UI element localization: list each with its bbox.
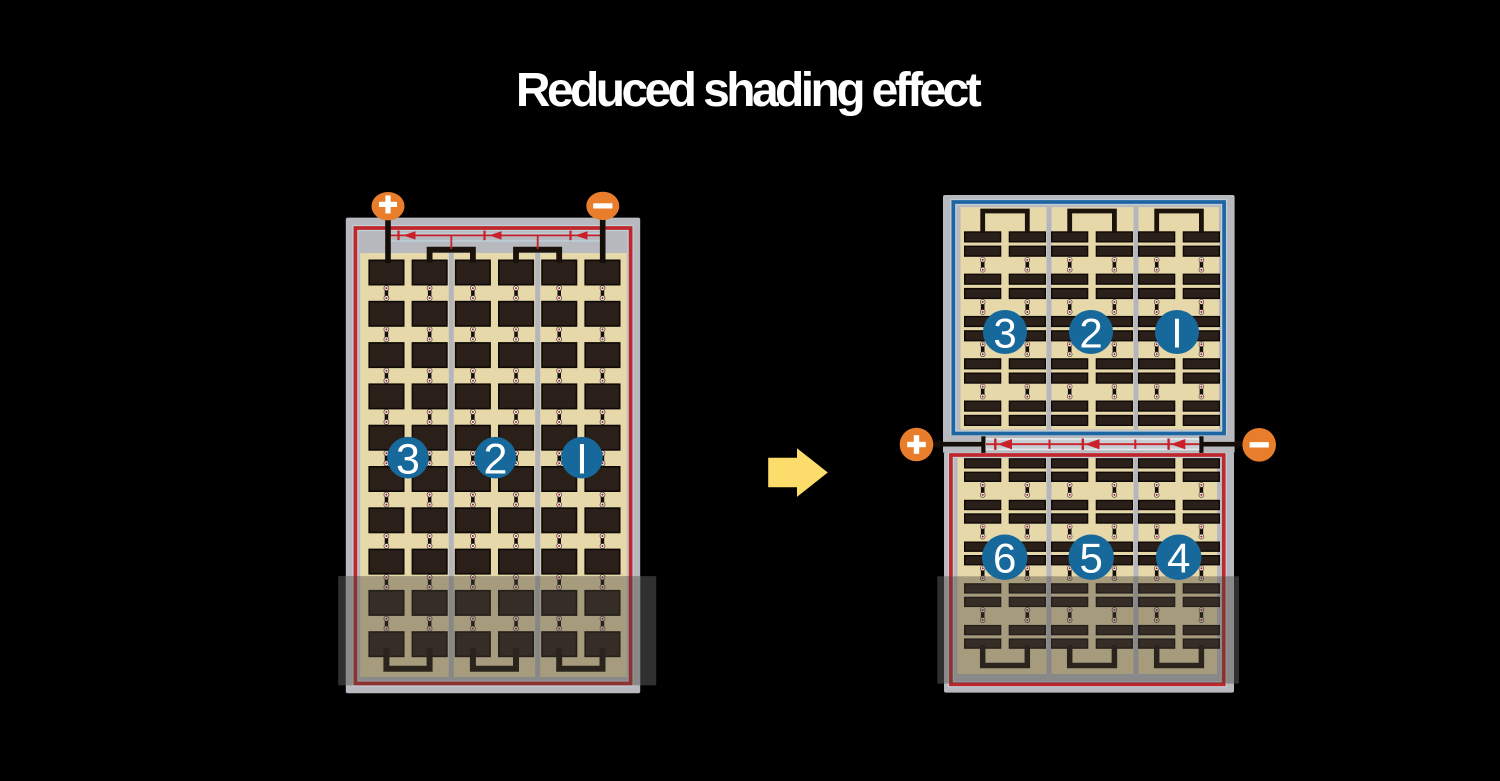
svg-text:3: 3 bbox=[396, 435, 420, 483]
svg-text:I: I bbox=[1171, 309, 1183, 356]
svg-text:I: I bbox=[576, 435, 588, 483]
svg-text:3: 3 bbox=[993, 309, 1016, 356]
svg-text:Reduced shading effect: Reduced shading effect bbox=[516, 64, 982, 117]
svg-text:2: 2 bbox=[484, 435, 508, 483]
svg-text:2: 2 bbox=[1079, 309, 1102, 356]
svg-text:4: 4 bbox=[1167, 535, 1190, 582]
svg-text:5: 5 bbox=[1080, 535, 1103, 582]
svg-text:6: 6 bbox=[993, 535, 1016, 582]
